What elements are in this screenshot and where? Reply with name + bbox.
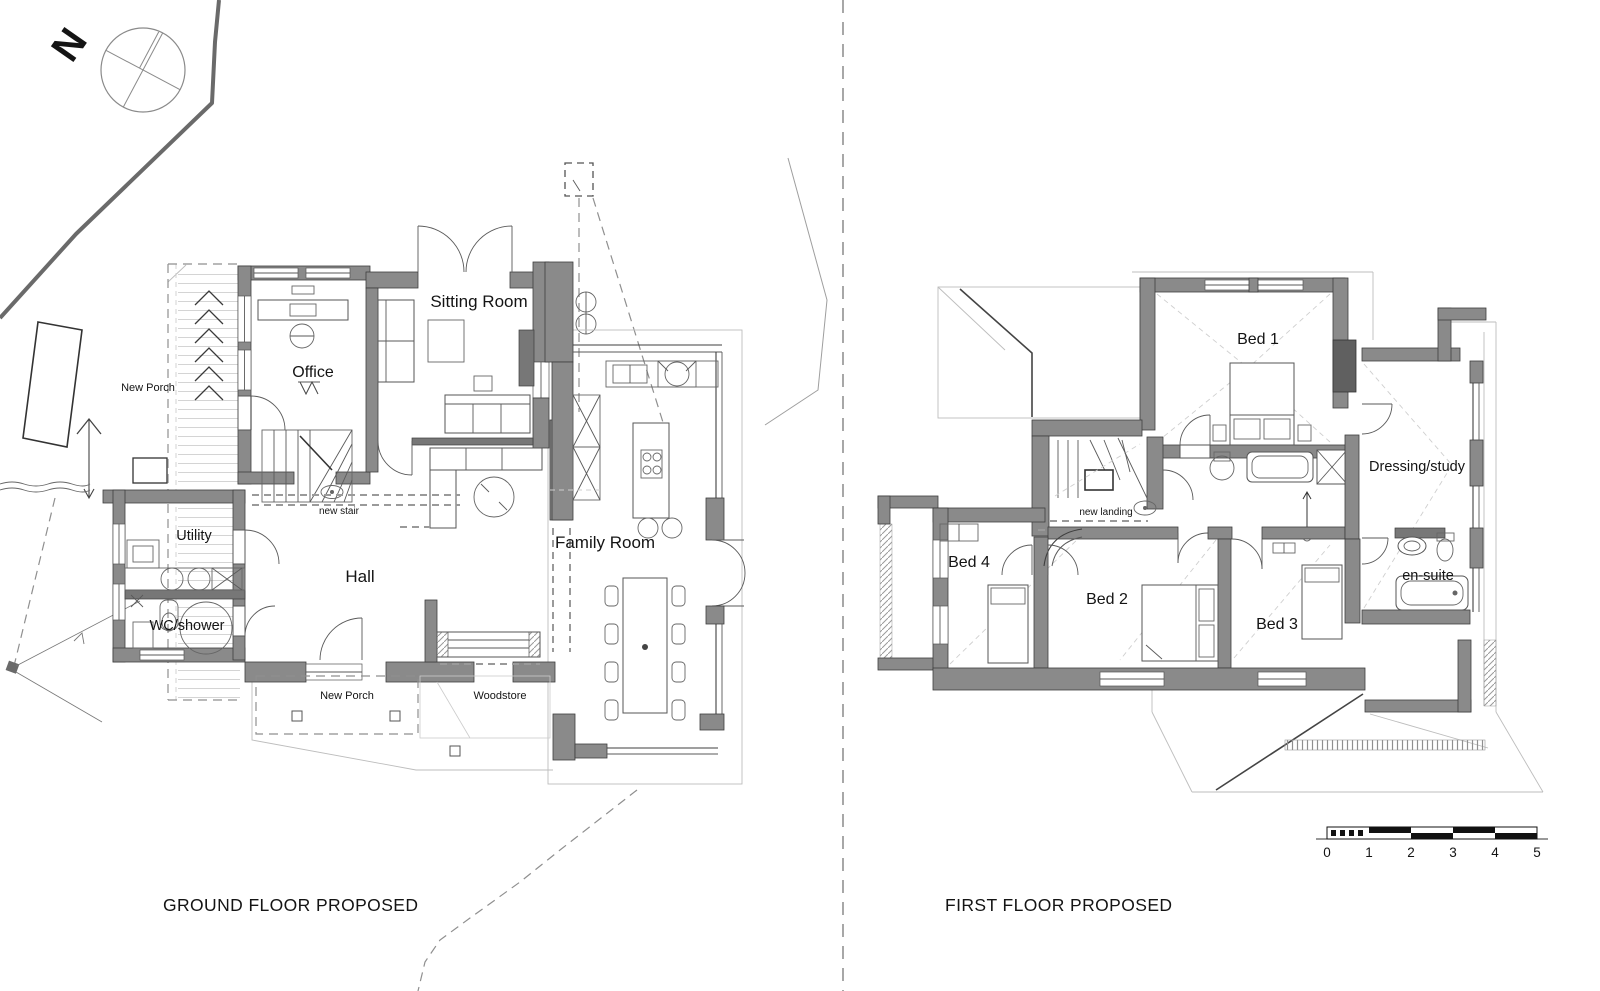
hall-south-wall <box>245 600 555 682</box>
room-label-en-suite: en-suite <box>1402 568 1454 584</box>
bed1-bed <box>1213 363 1311 445</box>
north-letter: N <box>43 21 96 70</box>
room-label-bed2: Bed 2 <box>1086 591 1128 608</box>
sitting-room-furniture <box>378 300 530 433</box>
dining-table <box>605 578 685 720</box>
scale-tick-3: 3 <box>1449 845 1457 860</box>
scale-tick-5: 5 <box>1533 845 1541 860</box>
room-label-new-porch-bottom: New Porch <box>320 690 374 702</box>
west-roof-hatch <box>880 524 892 662</box>
north-label: N <box>43 21 96 70</box>
room-label-wc-shower: WC/shower <box>150 618 225 634</box>
room-label-bed3: Bed 3 <box>1256 616 1298 633</box>
office-floor-symbol <box>298 382 320 394</box>
window-seat <box>437 632 540 664</box>
site-contour-line <box>765 158 827 425</box>
room-label-sitting-room: Sitting Room <box>430 292 527 311</box>
label-new-stair: new stair <box>319 506 360 517</box>
chimney-block <box>1333 340 1356 392</box>
scale-tick-1: 1 <box>1365 845 1373 860</box>
bed4-furniture <box>940 524 1028 663</box>
kitchen-island <box>633 423 682 538</box>
scale-tick-2: 2 <box>1407 845 1415 860</box>
room-label-bed4: Bed 4 <box>948 554 990 571</box>
corridor-walls <box>1048 527 1345 569</box>
first-floor-stairs <box>1032 420 1163 536</box>
woodstore-structure <box>420 676 550 756</box>
room-label-dressing-study: Dressing/study <box>1369 459 1466 475</box>
fireplace-block <box>519 330 534 386</box>
snug-furniture <box>400 448 542 528</box>
site-small-structure <box>133 458 167 483</box>
office-desk <box>258 286 348 348</box>
first-floor-plan: Bed 1 Bed 2 Bed 3 Bed 4 Dressing/study e… <box>878 272 1543 792</box>
removed-wall-dashes <box>252 495 460 505</box>
room-label-bed1: Bed 1 <box>1237 331 1279 348</box>
label-new-landing: new landing <box>1079 507 1132 518</box>
ground-floor-plan: New Porch Office Sitting Room Utility Ha… <box>103 226 745 784</box>
first-floor-title: FIRST FLOOR PROPOSED <box>945 895 1172 915</box>
bed3-bed <box>1302 565 1342 639</box>
room-label-family-room: Family Room <box>555 533 655 552</box>
bed2-bed <box>1142 585 1218 661</box>
scale-bar: 0 1 2 3 4 5 <box>1316 827 1548 860</box>
scale-tick-0: 0 <box>1323 845 1331 860</box>
garden-dashed-path <box>418 790 637 991</box>
compass-icon <box>86 13 200 127</box>
room-label-woodstore: Woodstore <box>474 690 527 702</box>
ground-floor-title: GROUND FLOOR PROPOSED <box>163 895 418 915</box>
room-label-utility: Utility <box>176 528 212 544</box>
room-label-office: Office <box>292 364 334 381</box>
scale-tick-4: 4 <box>1491 845 1499 860</box>
roof-ridge-hatch <box>1285 740 1485 750</box>
dashed-projection-lines <box>565 163 667 439</box>
outbuilding <box>23 322 82 447</box>
room-label-hall: Hall <box>345 567 374 586</box>
plan-sheet: N <box>0 0 1600 991</box>
staircase <box>262 430 352 502</box>
room-label-new-porch-left: New Porch <box>121 382 175 394</box>
floor-plans-drawing: N <box>0 0 1600 991</box>
south-wall <box>933 668 1365 690</box>
new-porch-bottom <box>256 676 418 734</box>
